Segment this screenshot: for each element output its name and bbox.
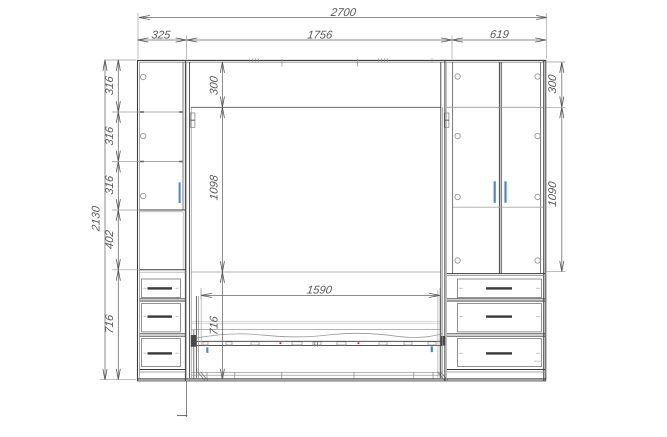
svg-text:1090: 1090	[547, 180, 559, 207]
svg-text:325: 325	[151, 30, 172, 42]
svg-text:2130: 2130	[91, 205, 103, 233]
svg-text:1756: 1756	[307, 30, 334, 42]
svg-text:300: 300	[547, 73, 559, 94]
svg-text:716: 716	[104, 313, 116, 334]
svg-text:300: 300	[209, 75, 221, 96]
svg-text:316: 316	[104, 75, 116, 96]
svg-text:1098: 1098	[209, 174, 221, 201]
svg-text:316: 316	[104, 174, 116, 195]
svg-text:1590: 1590	[306, 284, 333, 296]
svg-text:619: 619	[489, 29, 510, 41]
svg-text:316: 316	[104, 125, 116, 146]
svg-text:2700: 2700	[329, 7, 357, 19]
svg-text:402: 402	[104, 229, 116, 250]
svg-text:716: 716	[209, 315, 221, 336]
